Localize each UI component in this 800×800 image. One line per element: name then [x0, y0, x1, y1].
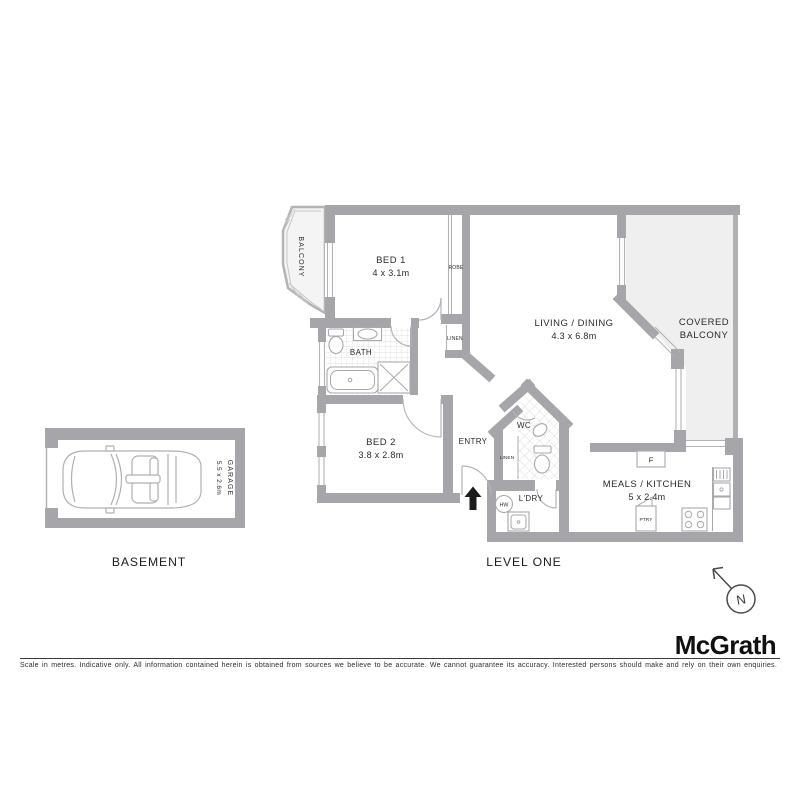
- balustrade-wall: [733, 215, 738, 440]
- laundry-label: L'DRY: [519, 494, 544, 503]
- level-one-title: LEVEL ONE: [486, 555, 561, 569]
- brand-logo: McGrath: [675, 630, 776, 661]
- robe-label: ROBE: [449, 265, 464, 271]
- car-icon: [63, 446, 201, 513]
- kitchen-sink-icon: [714, 468, 731, 509]
- covered-balcony-label-1: COVERED: [679, 317, 729, 328]
- shower-icon: [378, 362, 410, 393]
- covered-balcony-label-2: BALCONY: [680, 330, 729, 341]
- pantry-label: PTRY: [639, 517, 653, 523]
- sink-icon: [354, 328, 382, 341]
- north-label: N: [735, 591, 747, 607]
- bed2-dims: 3.8 x 2.8m: [358, 450, 403, 460]
- bathtub-icon: [327, 367, 378, 393]
- toilet-icon: [329, 329, 344, 354]
- fridge-label: F: [649, 456, 654, 465]
- page: BED 1 4 x 3.1m BED 2 3.8 x 2.8m LIVING /…: [0, 0, 800, 800]
- meals-label: MEALS / KITCHEN: [603, 479, 692, 490]
- bed1-dims: 4 x 3.1m: [373, 268, 410, 278]
- living-label: LIVING / DINING: [534, 318, 613, 329]
- disclaimer-text: Scale in metres. Indicative only. All in…: [20, 658, 780, 669]
- basement-plan: GARAGE 5.5 x 2.6m BASEMENT: [45, 428, 245, 569]
- floorplan-canvas: BED 1 4 x 3.1m BED 2 3.8 x 2.8m LIVING /…: [0, 0, 800, 800]
- garage-dims: 5.5 x 2.6m: [215, 461, 222, 495]
- bath-label: BATH: [350, 348, 372, 357]
- entry-arrow-icon: [465, 487, 482, 511]
- meals-dims: 5 x 2.4m: [629, 492, 666, 502]
- stove-icon: [682, 508, 707, 531]
- basement-title: BASEMENT: [112, 555, 186, 569]
- garage-label: GARAGE: [226, 460, 233, 497]
- hot-water-label: HW: [500, 503, 509, 509]
- entry-label: ENTRY: [459, 437, 488, 446]
- level-one-plan: BED 1 4 x 3.1m BED 2 3.8 x 2.8m LIVING /…: [283, 205, 743, 569]
- north-compass: N: [713, 568, 755, 614]
- linen-wc-label: LINEN: [500, 455, 515, 461]
- pantry-icon: [636, 497, 656, 531]
- bed2-label: BED 2: [366, 437, 396, 448]
- linen-hall-label: LINEN: [447, 336, 463, 342]
- laundry-tub-icon: [508, 512, 529, 531]
- balcony-label: BALCONY: [297, 236, 304, 277]
- wc-toilet-icon: [534, 446, 551, 473]
- wc-label: WC: [517, 421, 531, 430]
- living-dims: 4.3 x 6.8m: [551, 331, 596, 341]
- bed1-label: BED 1: [376, 255, 406, 266]
